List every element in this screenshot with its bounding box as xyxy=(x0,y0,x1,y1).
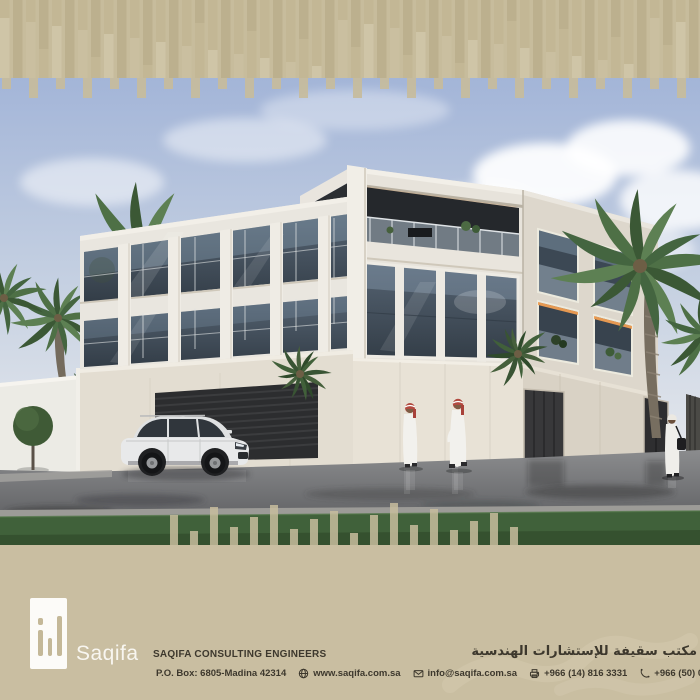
po-box-label: P.O. Box: 6805-Madina 42314 xyxy=(156,668,286,679)
band-base xyxy=(0,0,700,78)
entry-door xyxy=(524,389,564,461)
saqifa-logo xyxy=(30,598,67,669)
logo-bar-2 xyxy=(48,638,53,656)
website-item: www.saqifa.com.sa xyxy=(298,668,400,679)
band-pattern xyxy=(0,0,699,78)
website-label: www.saqifa.com.sa xyxy=(313,668,400,679)
envelope-icon xyxy=(413,668,424,679)
side-fence xyxy=(686,394,700,457)
email-item: info@saqifa.com.sa xyxy=(413,668,518,679)
po-box: P.O. Box: 6805-Madina 42314 xyxy=(156,668,286,679)
architectural-rendering xyxy=(0,78,700,545)
email-label: info@saqifa.com.sa xyxy=(428,668,518,679)
phone-label: +966 (50) 027 5888 xyxy=(654,668,700,679)
contact-info-row: P.O. Box: 6805-Madina 42314 www.saqifa.c… xyxy=(156,668,700,679)
fax-item: +966 (14) 816 3331 xyxy=(529,668,627,679)
poster: Saqifa SAQIFA CONSULTING ENGINEERS مكتب … xyxy=(0,0,700,700)
logo-wordmark: Saqifa xyxy=(76,642,139,666)
phone-icon xyxy=(639,668,650,679)
globe-icon xyxy=(298,668,309,679)
logo-bar-dot xyxy=(38,618,43,625)
phone-item: +966 (50) 027 5888 xyxy=(639,668,700,679)
fax-label: +966 (14) 816 3331 xyxy=(544,668,627,679)
company-name-en: SAQIFA CONSULTING ENGINEERS xyxy=(153,649,326,660)
footer: Saqifa SAQIFA CONSULTING ENGINEERS مكتب … xyxy=(0,545,700,700)
logo-bar-1 xyxy=(38,630,43,656)
fax-icon xyxy=(529,668,540,679)
company-name-ar: مكتب سقيفة للإستشارات الهندسية xyxy=(471,644,697,659)
logo-bar-3 xyxy=(57,616,62,656)
